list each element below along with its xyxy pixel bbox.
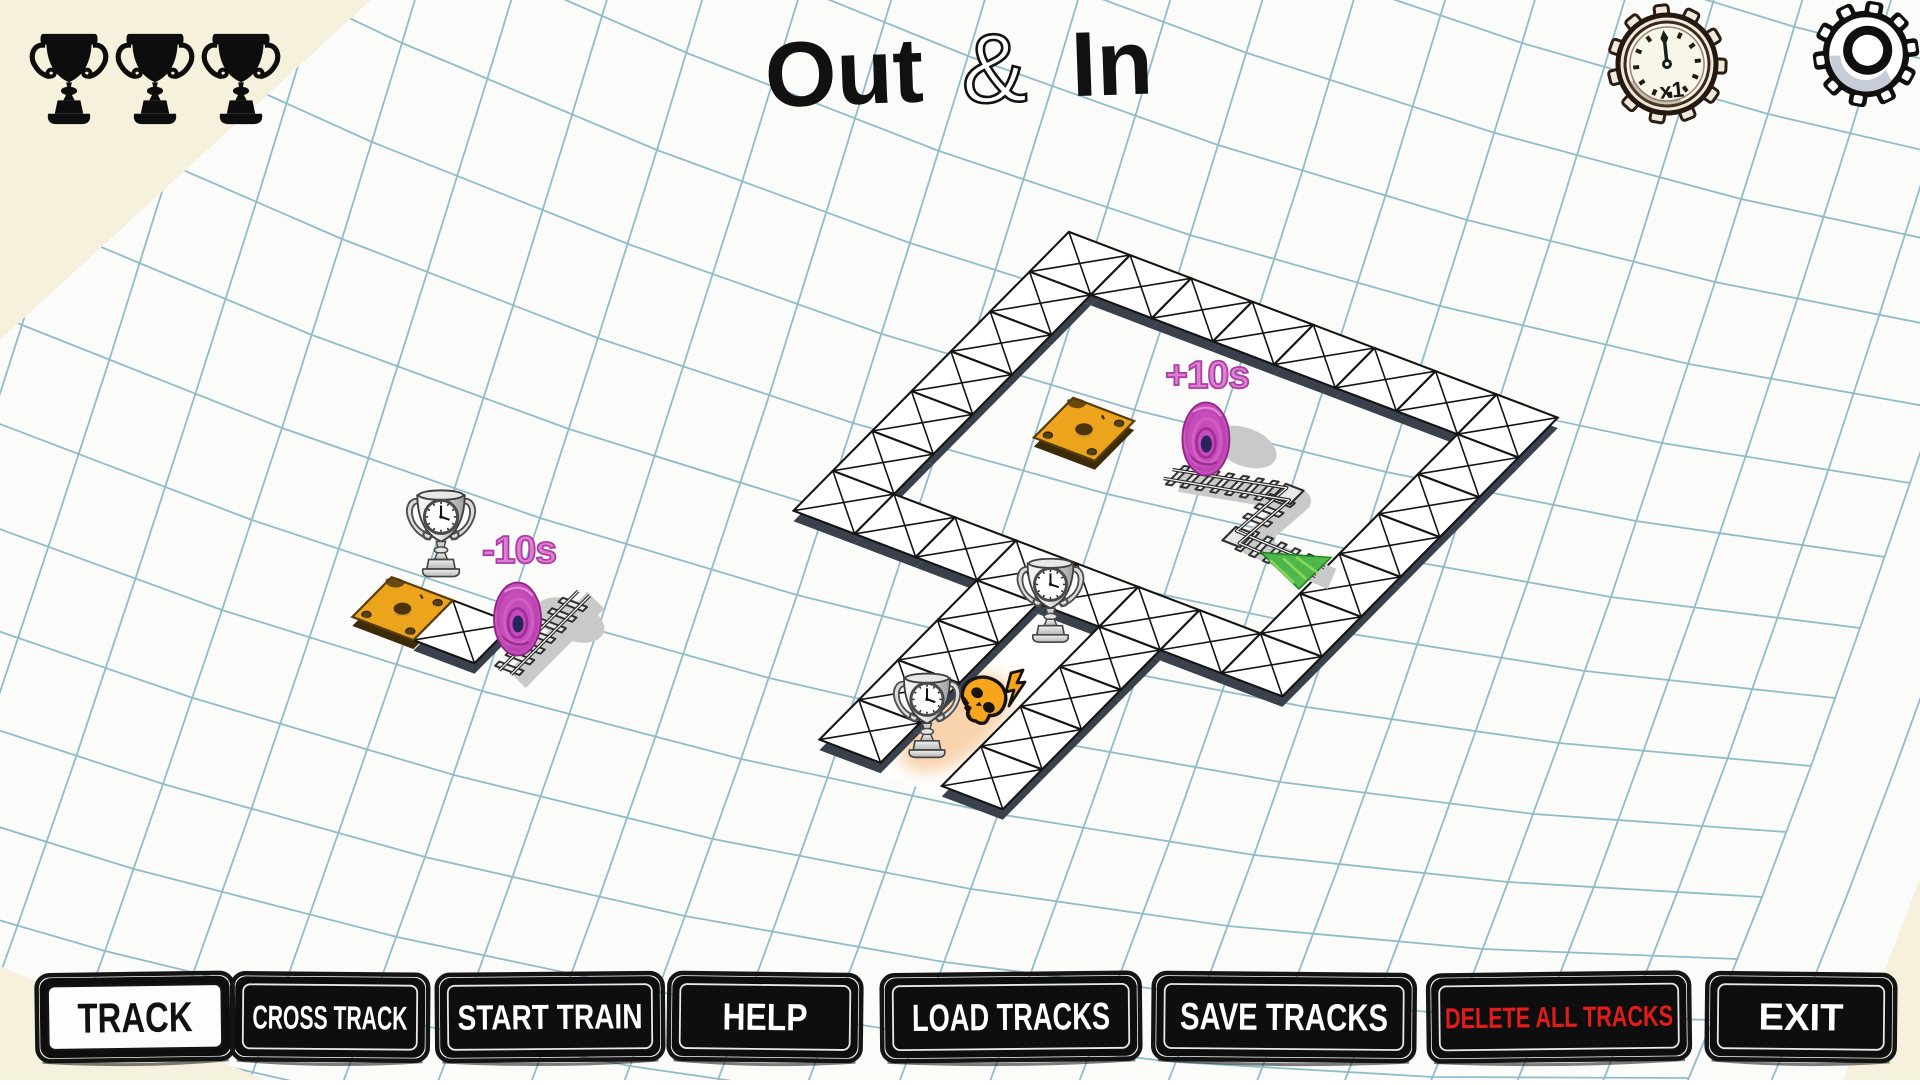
svg-text:EXIT: EXIT xyxy=(1758,997,1843,1040)
svg-text:SAVE TRACKS: SAVE TRACKS xyxy=(1180,996,1388,1040)
svg-text:-10s: -10s xyxy=(482,529,556,572)
svg-text:CROSS TRACK: CROSS TRACK xyxy=(252,998,407,1036)
svg-text:x1: x1 xyxy=(1658,76,1685,103)
svg-text:+10s: +10s xyxy=(1165,354,1249,397)
svg-text:HELP: HELP xyxy=(722,996,808,1039)
svg-text:LOAD TRACKS: LOAD TRACKS xyxy=(912,996,1110,1040)
svg-text:Out: Out xyxy=(763,19,925,126)
svg-text:START TRAIN: START TRAIN xyxy=(457,997,642,1038)
svg-text:In: In xyxy=(1069,11,1154,116)
svg-text:&: & xyxy=(959,12,1028,124)
svg-text:DELETE ALL TRACKS: DELETE ALL TRACKS xyxy=(1445,1001,1673,1036)
svg-text:TRACK: TRACK xyxy=(77,993,193,1042)
